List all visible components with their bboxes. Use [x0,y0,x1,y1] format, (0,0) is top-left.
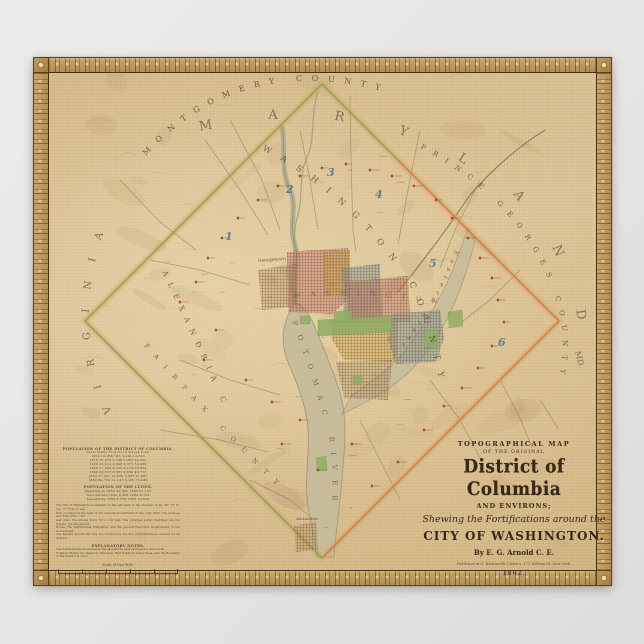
border-corner-rosette [596,57,612,73]
ornate-border-right [596,57,612,586]
ornate-border-left [33,57,49,586]
ornate-border-top [33,57,612,73]
antique-paper [33,57,612,586]
ornate-border-bottom [33,570,612,586]
map-poster [33,57,612,586]
poster-mockup-scene: MONTGOMERY COUNTY MARYLAND PRINCE GEORGE… [0,0,644,644]
border-corner-rosette [33,57,49,73]
border-corner-rosette [33,570,49,586]
border-corner-rosette [596,570,612,586]
